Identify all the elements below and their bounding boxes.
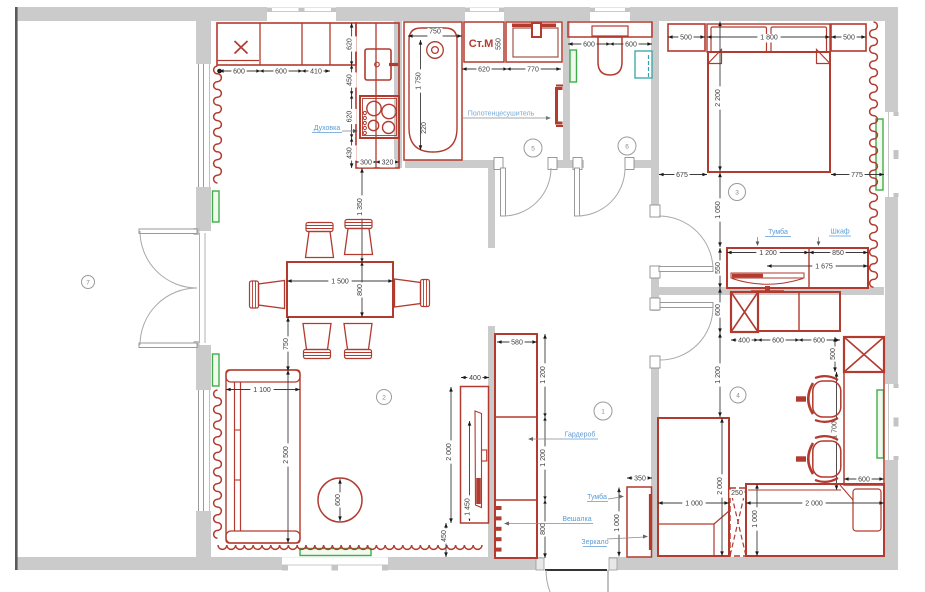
svg-text:2 000: 2 000 xyxy=(805,501,823,508)
svg-text:1 050: 1 050 xyxy=(715,201,722,219)
svg-text:1 100: 1 100 xyxy=(253,387,271,394)
svg-text:600: 600 xyxy=(813,337,825,344)
svg-text:Шкаф: Шкаф xyxy=(830,229,850,236)
svg-text:220: 220 xyxy=(421,122,428,134)
svg-text:1: 1 xyxy=(601,408,605,415)
svg-text:300: 300 xyxy=(360,159,372,166)
svg-text:600: 600 xyxy=(335,494,342,506)
svg-text:1 000: 1 000 xyxy=(614,514,621,532)
svg-text:620: 620 xyxy=(347,38,354,50)
svg-text:Полотенцесушитель: Полотенцесушитель xyxy=(468,111,535,118)
svg-text:800: 800 xyxy=(540,523,547,535)
svg-text:1 200: 1 200 xyxy=(540,366,547,384)
svg-text:1 675: 1 675 xyxy=(815,264,833,271)
svg-text:2: 2 xyxy=(382,394,386,401)
svg-text:600: 600 xyxy=(233,68,245,75)
svg-text:600: 600 xyxy=(583,41,595,48)
svg-text:850: 850 xyxy=(832,250,844,257)
svg-text:600: 600 xyxy=(858,476,870,483)
svg-text:Зеркало: Зеркало xyxy=(581,539,608,546)
svg-text:450: 450 xyxy=(441,530,448,542)
svg-text:600: 600 xyxy=(715,304,722,316)
svg-text:400: 400 xyxy=(738,337,750,344)
svg-text:7: 7 xyxy=(86,279,90,286)
svg-text:Гардероб: Гардероб xyxy=(565,431,596,439)
svg-text:430: 430 xyxy=(347,147,354,159)
svg-text:410: 410 xyxy=(310,68,322,75)
svg-text:620: 620 xyxy=(347,111,354,123)
svg-text:2 000: 2 000 xyxy=(717,477,724,495)
svg-text:350: 350 xyxy=(634,475,646,482)
svg-text:500: 500 xyxy=(843,34,855,41)
svg-text:1 200: 1 200 xyxy=(759,250,777,257)
svg-text:800: 800 xyxy=(357,284,364,296)
svg-text:450: 450 xyxy=(347,74,354,86)
svg-text:1 700: 1 700 xyxy=(832,421,839,439)
svg-text:550: 550 xyxy=(496,38,503,50)
svg-text:1 500: 1 500 xyxy=(331,279,349,286)
svg-text:Тумба: Тумба xyxy=(768,228,788,236)
svg-text:750: 750 xyxy=(429,29,441,36)
svg-text:3: 3 xyxy=(735,189,739,196)
svg-text:1 750: 1 750 xyxy=(416,72,423,90)
svg-text:1 350: 1 350 xyxy=(357,198,364,216)
svg-text:620: 620 xyxy=(478,66,490,73)
svg-text:2 500: 2 500 xyxy=(283,446,290,464)
svg-text:550: 550 xyxy=(715,262,722,274)
svg-text:Тумба: Тумба xyxy=(587,493,607,501)
svg-text:600: 600 xyxy=(625,41,637,48)
svg-text:750: 750 xyxy=(283,338,290,350)
svg-text:1 800: 1 800 xyxy=(760,34,778,41)
svg-text:770: 770 xyxy=(527,66,539,73)
svg-text:580: 580 xyxy=(511,340,523,347)
svg-text:5: 5 xyxy=(531,145,535,152)
svg-text:Ст.М: Ст.М xyxy=(469,38,494,50)
svg-text:500: 500 xyxy=(830,348,837,360)
svg-text:4: 4 xyxy=(736,392,740,399)
svg-text:Вешалка: Вешалка xyxy=(562,516,591,523)
svg-text:6: 6 xyxy=(625,143,629,150)
svg-text:500: 500 xyxy=(680,34,692,41)
svg-text:2 200: 2 200 xyxy=(715,89,722,107)
svg-text:600: 600 xyxy=(275,68,287,75)
svg-text:Духовка: Духовка xyxy=(314,125,341,132)
svg-text:2 000: 2 000 xyxy=(446,443,453,461)
svg-text:1 200: 1 200 xyxy=(715,366,722,384)
svg-text:400: 400 xyxy=(469,375,481,382)
svg-text:1 450: 1 450 xyxy=(465,498,472,516)
svg-text:320: 320 xyxy=(382,159,394,166)
svg-text:675: 675 xyxy=(676,172,688,179)
svg-text:250: 250 xyxy=(731,490,743,497)
svg-text:600: 600 xyxy=(772,337,784,344)
svg-text:1 200: 1 200 xyxy=(540,449,547,467)
svg-text:1 000: 1 000 xyxy=(752,510,759,528)
svg-text:775: 775 xyxy=(851,172,863,179)
svg-text:1 000: 1 000 xyxy=(685,501,703,508)
